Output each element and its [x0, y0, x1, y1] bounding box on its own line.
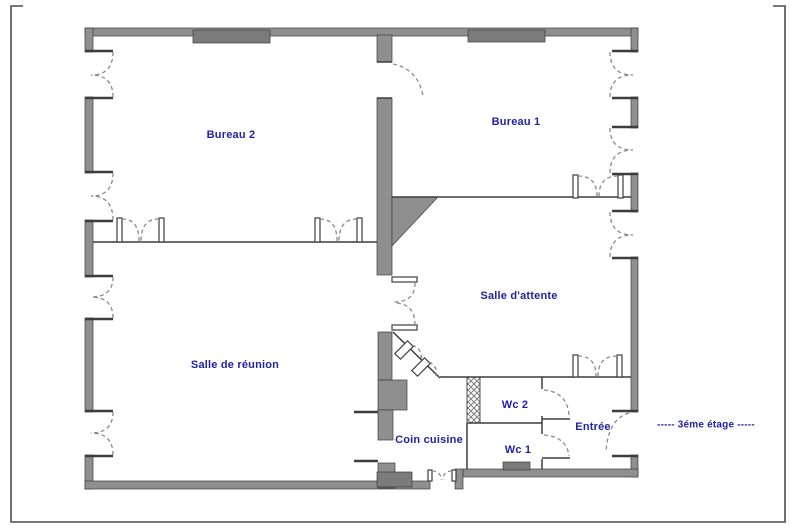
floor-plan-drawing: [0, 0, 800, 530]
door-wc1: [544, 435, 569, 456]
window-arcs-right: [610, 52, 633, 257]
floor-plan-page: Bureau 2 Bureau 1 Salle d'attente Salle …: [0, 0, 800, 530]
interior-thick-walls: [377, 35, 438, 488]
top-wall-closet-left: [193, 30, 270, 43]
opening-caps: [85, 51, 638, 461]
floor-note: ----- 3éme étage -----: [657, 420, 755, 431]
duct-shaft-hatch: [467, 377, 480, 423]
wall-features: [193, 30, 545, 487]
door-wc2: [544, 390, 569, 415]
window-arcs-left: [91, 52, 113, 455]
door-bureau1: [393, 64, 423, 96]
room-label-salle-attente: Salle d'attente: [480, 290, 557, 302]
room-label-wc-2: Wc 2: [502, 399, 528, 411]
room-label-entree: Entrée: [575, 421, 610, 433]
room-label-wc-1: Wc 1: [505, 444, 531, 456]
room-label-coin-cuisine: Coin cuisine: [395, 434, 463, 446]
interior-partitions: [93, 62, 631, 469]
room-label-salle-reunion: Salle de réunion: [191, 359, 279, 371]
room-label-bureau-1: Bureau 1: [492, 116, 541, 128]
top-wall-closet-right: [468, 30, 545, 42]
chimney-breast: [392, 197, 438, 246]
diagonal-kitchen-door: [395, 341, 437, 376]
room-label-bureau-2: Bureau 2: [207, 129, 256, 141]
exterior-walls: [85, 28, 638, 489]
